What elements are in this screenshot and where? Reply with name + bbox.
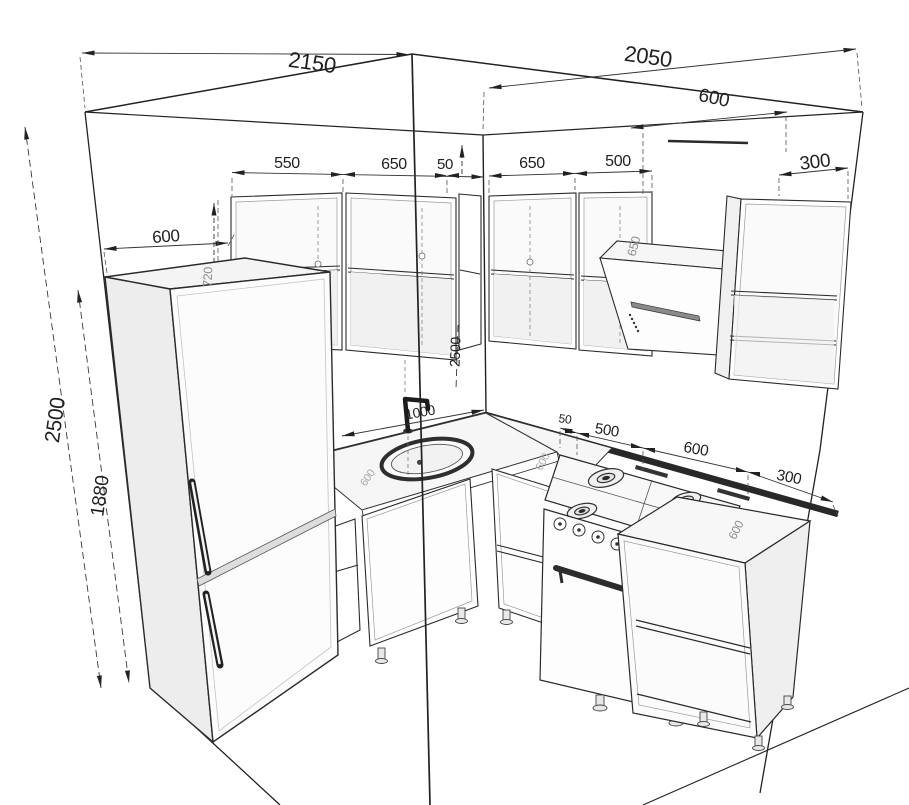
dim-left-upper-550: 550 bbox=[274, 155, 300, 172]
dim-left-upper-50: 50 bbox=[437, 156, 453, 173]
dim-fridge-width: 600 bbox=[152, 226, 181, 247]
kitchen-drawing-canvas: 2150 2050 600 550 650 50 650 500 300 600… bbox=[0, 0, 909, 805]
dim-base-300: 300 bbox=[775, 467, 803, 489]
tall-upper-cabinet bbox=[715, 196, 851, 389]
dim-wall-right: 2050 bbox=[623, 41, 674, 72]
dim-base-50: 50 bbox=[558, 411, 573, 427]
dim-upper-cabinet-height: 720 bbox=[201, 266, 216, 287]
dim-right-upper-650: 650 bbox=[519, 155, 545, 172]
end-shelf-unit bbox=[618, 497, 810, 751]
dim-right-upper-500: 500 bbox=[605, 153, 631, 170]
dim-hood-width: 600 bbox=[697, 85, 732, 112]
dim-fridge-height: 1880 bbox=[87, 474, 114, 518]
dim-ceiling-height: 2500 bbox=[41, 396, 70, 444]
dim-wall-left: 2150 bbox=[287, 47, 338, 78]
dim-corner-height: 2500 bbox=[446, 336, 463, 367]
base-cabinets bbox=[305, 469, 582, 664]
dim-left-upper-650: 650 bbox=[381, 156, 407, 173]
fridge bbox=[105, 258, 338, 742]
dim-base-600: 600 bbox=[682, 439, 710, 460]
kitchen-drawing: 2150 2050 600 550 650 50 650 500 300 600… bbox=[0, 0, 909, 805]
dim-tall-cabinet: 300 bbox=[798, 150, 831, 175]
